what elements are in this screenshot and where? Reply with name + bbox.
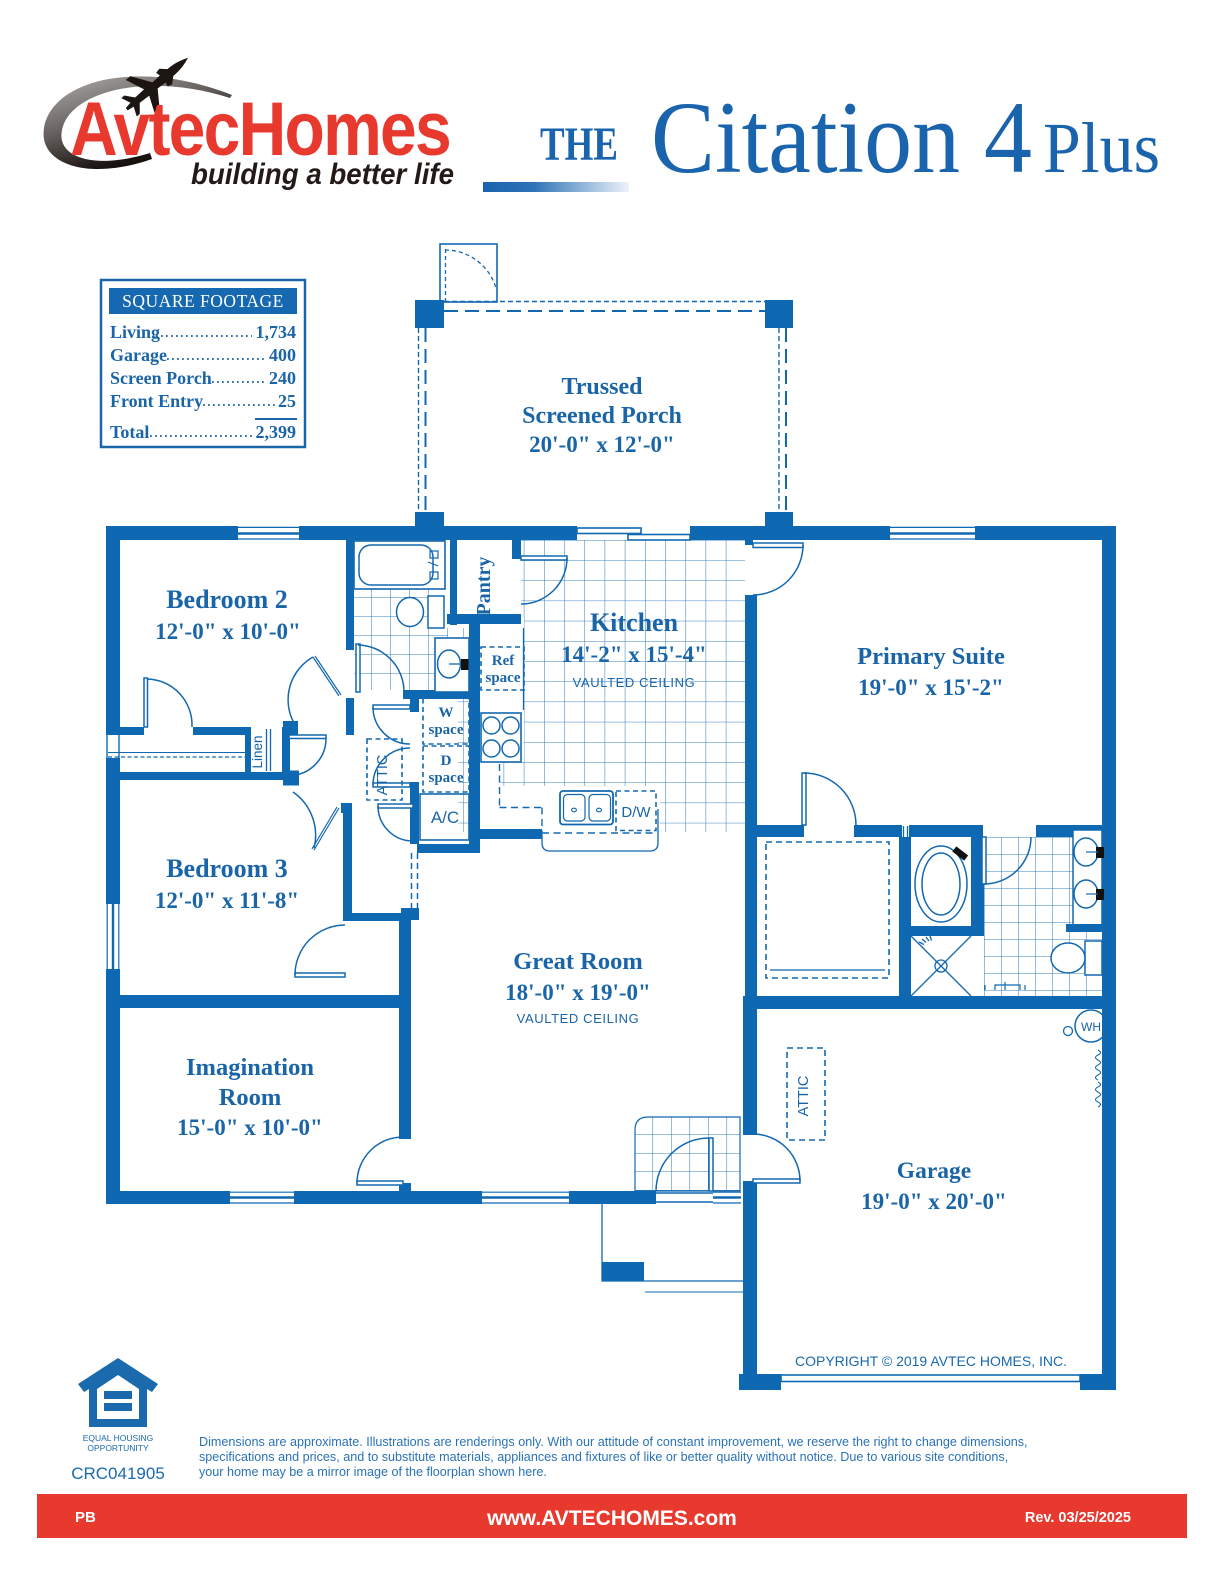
svg-text:CRC041905: CRC041905 [71, 1464, 165, 1483]
svg-text:Ref: Ref [492, 653, 515, 669]
svg-text:Total: Total [110, 422, 149, 442]
svg-text:VAULTED CEILING: VAULTED CEILING [517, 1011, 640, 1026]
svg-text:ATTIC: ATTIC [796, 1076, 812, 1117]
svg-text:building a better life: building a better life [191, 158, 454, 191]
svg-text:W: W [439, 705, 454, 721]
svg-text:Great Room: Great Room [513, 948, 643, 975]
svg-text:Dimensions are approximate. Il: Dimensions are approximate. Illustration… [199, 1435, 1028, 1449]
svg-text:Bedroom 2: Bedroom 2 [166, 585, 288, 614]
svg-text:D/W: D/W [621, 804, 651, 821]
svg-text:COPYRIGHT © 2019 AVTEC HOMES,: COPYRIGHT © 2019 AVTEC HOMES, INC. [795, 1353, 1067, 1369]
svg-text:14'-2" x 15'-4": 14'-2" x 15'-4" [561, 642, 707, 667]
svg-text:Linen: Linen [250, 735, 265, 768]
svg-text:25: 25 [278, 391, 296, 411]
svg-text:Screened Porch: Screened Porch [522, 403, 682, 429]
svg-text:EQUAL HOUSING: EQUAL HOUSING [83, 1433, 154, 1443]
svg-text:WH: WH [1081, 1020, 1101, 1034]
svg-text:12'-0" x 11'-8": 12'-0" x 11'-8" [155, 888, 299, 913]
svg-text:19'-0" x 15'-2": 19'-0" x 15'-2" [858, 675, 1004, 700]
svg-text:Bedroom 3: Bedroom 3 [166, 854, 288, 883]
svg-text:PB: PB [75, 1509, 96, 1526]
svg-text:Kitchen: Kitchen [590, 608, 679, 637]
svg-text:Garage: Garage [897, 1158, 971, 1184]
svg-text:20'-0" x 12'-0": 20'-0" x 12'-0" [529, 432, 675, 457]
svg-text:Trussed: Trussed [562, 374, 644, 400]
svg-text:18'-0" x 19'-0": 18'-0" x 19'-0" [505, 980, 651, 1005]
svg-text:specifications and prices, and: specifications and prices, and to substi… [199, 1450, 1008, 1464]
svg-text:OPPORTUNITY: OPPORTUNITY [87, 1443, 149, 1453]
svg-text:15'-0" x 10'-0": 15'-0" x 10'-0" [177, 1115, 323, 1140]
svg-text:Imagination: Imagination [186, 1054, 314, 1081]
svg-text:Living: Living [110, 322, 160, 342]
svg-text:Plus: Plus [1043, 108, 1160, 188]
svg-text:Screen Porch: Screen Porch [110, 368, 212, 388]
svg-text:Pantry: Pantry [473, 557, 495, 616]
svg-text:12'-0" x 10'-0": 12'-0" x 10'-0" [155, 619, 301, 644]
svg-text:THE: THE [540, 118, 618, 171]
svg-text:space: space [429, 722, 464, 738]
svg-text:space: space [429, 770, 464, 786]
svg-text:VAULTED CEILING: VAULTED CEILING [573, 675, 696, 690]
svg-text:space: space [486, 670, 521, 686]
svg-text:D: D [441, 753, 452, 769]
svg-text:SQUARE FOOTAGE: SQUARE FOOTAGE [122, 291, 284, 311]
svg-text:www.AVTECHOMES.com: www.AVTECHOMES.com [486, 1507, 737, 1530]
svg-text:Front Entry: Front Entry [110, 391, 203, 411]
svg-text:1,734: 1,734 [256, 322, 297, 342]
svg-text:Citation 4: Citation 4 [651, 81, 1032, 195]
svg-text:400: 400 [269, 345, 296, 365]
svg-text:A/C: A/C [431, 808, 459, 827]
svg-text:2,399: 2,399 [256, 422, 297, 442]
svg-text:Garage: Garage [110, 345, 167, 365]
svg-text:240: 240 [269, 368, 296, 388]
svg-text:Rev. 03/25/2025: Rev. 03/25/2025 [1025, 1510, 1131, 1526]
svg-text:Primary Suite: Primary Suite [857, 643, 1005, 670]
svg-text:Room: Room [219, 1084, 282, 1111]
svg-text:your home may be a mirror imag: your home may be a mirror image of the f… [199, 1465, 547, 1479]
svg-text:19'-0" x 20'-0": 19'-0" x 20'-0" [861, 1189, 1007, 1214]
svg-text:ATTIC: ATTIC [375, 755, 391, 796]
